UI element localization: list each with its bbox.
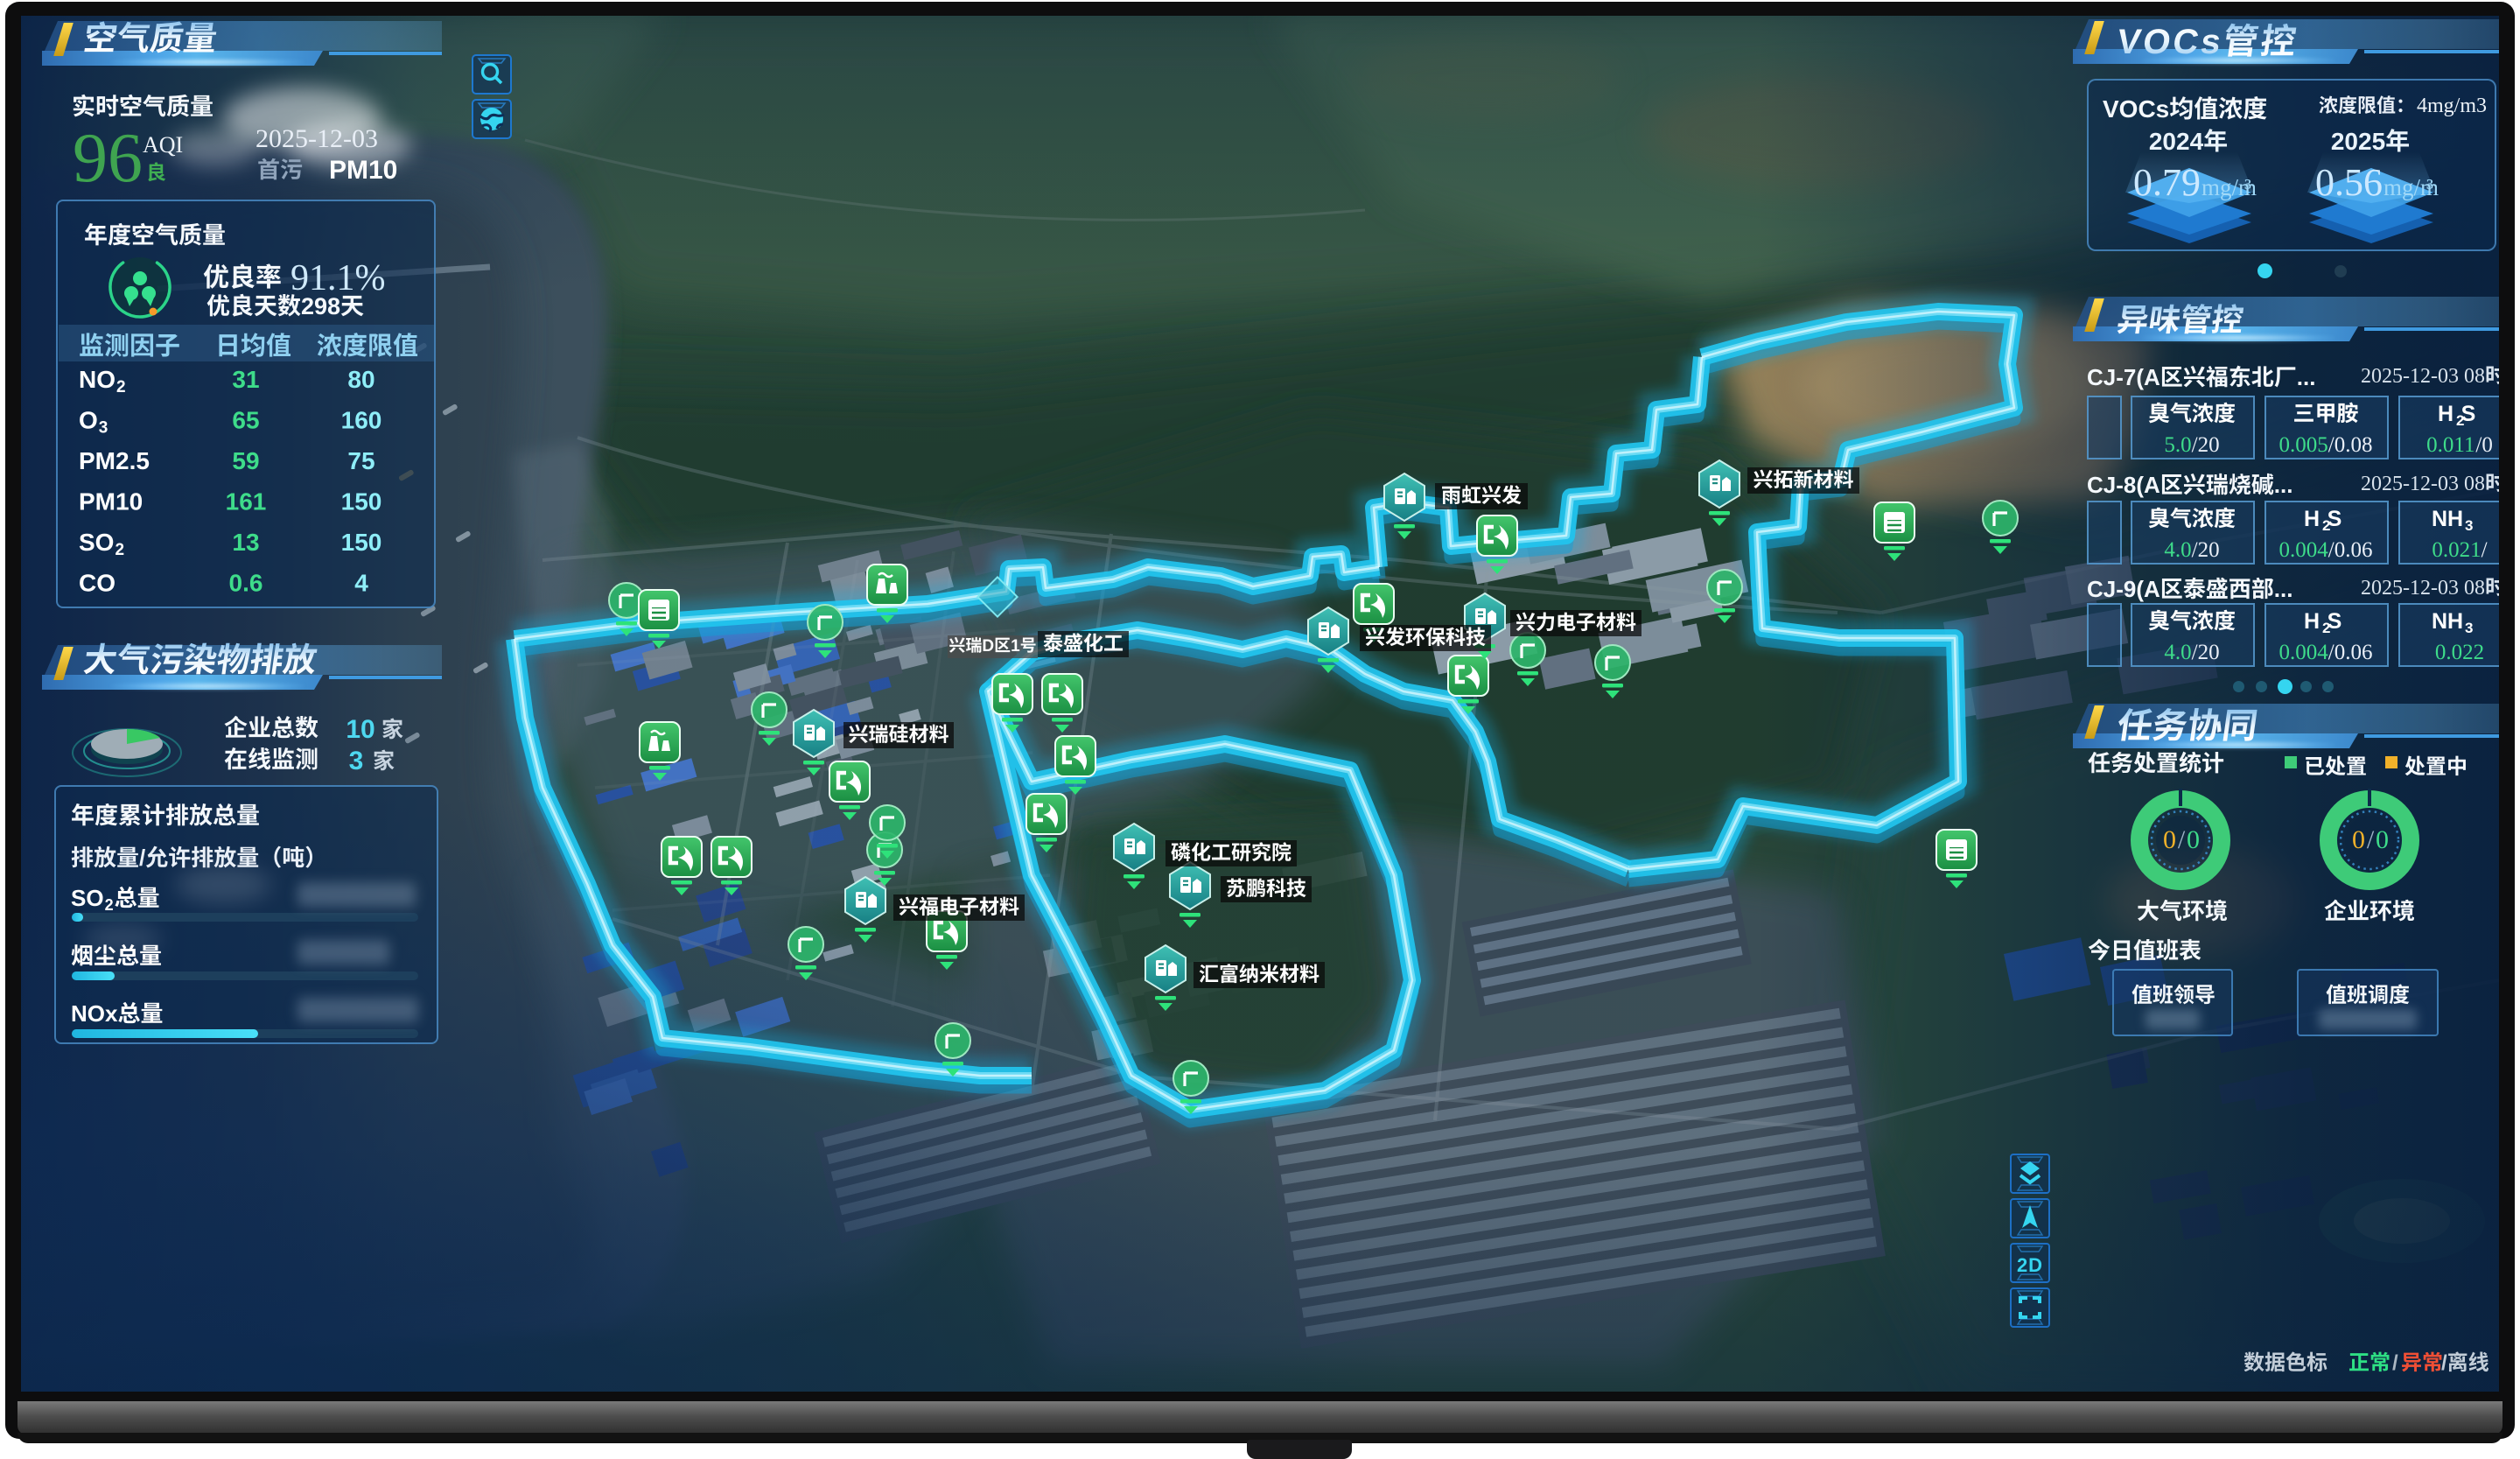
svg-text:10: 10 <box>346 715 374 744</box>
svg-text:1: 1 <box>1011 637 1020 656</box>
svg-text:2025-12-03 08: 2025-12-03 08 <box>2361 473 2485 495</box>
svg-text:...: ... <box>2297 364 2316 390</box>
svg-text:CJ-7(A: CJ-7(A <box>2087 364 2160 390</box>
svg-text:/: / <box>2392 1351 2398 1375</box>
svg-text:CJ-8(A: CJ-8(A <box>2087 472 2160 498</box>
svg-text:CJ-9(A: CJ-9(A <box>2087 576 2160 602</box>
svg-text:D: D <box>982 637 994 656</box>
svg-text:...: ... <box>2274 576 2293 602</box>
svg-text:2025-12-03 08: 2025-12-03 08 <box>2361 365 2485 388</box>
svg-text:96: 96 <box>73 120 143 197</box>
svg-text:...: ... <box>2274 472 2293 498</box>
svg-text:3: 3 <box>349 747 364 775</box>
svg-text:2025-12-03 08: 2025-12-03 08 <box>2361 577 2485 600</box>
svg-text:/: / <box>2441 1351 2447 1375</box>
